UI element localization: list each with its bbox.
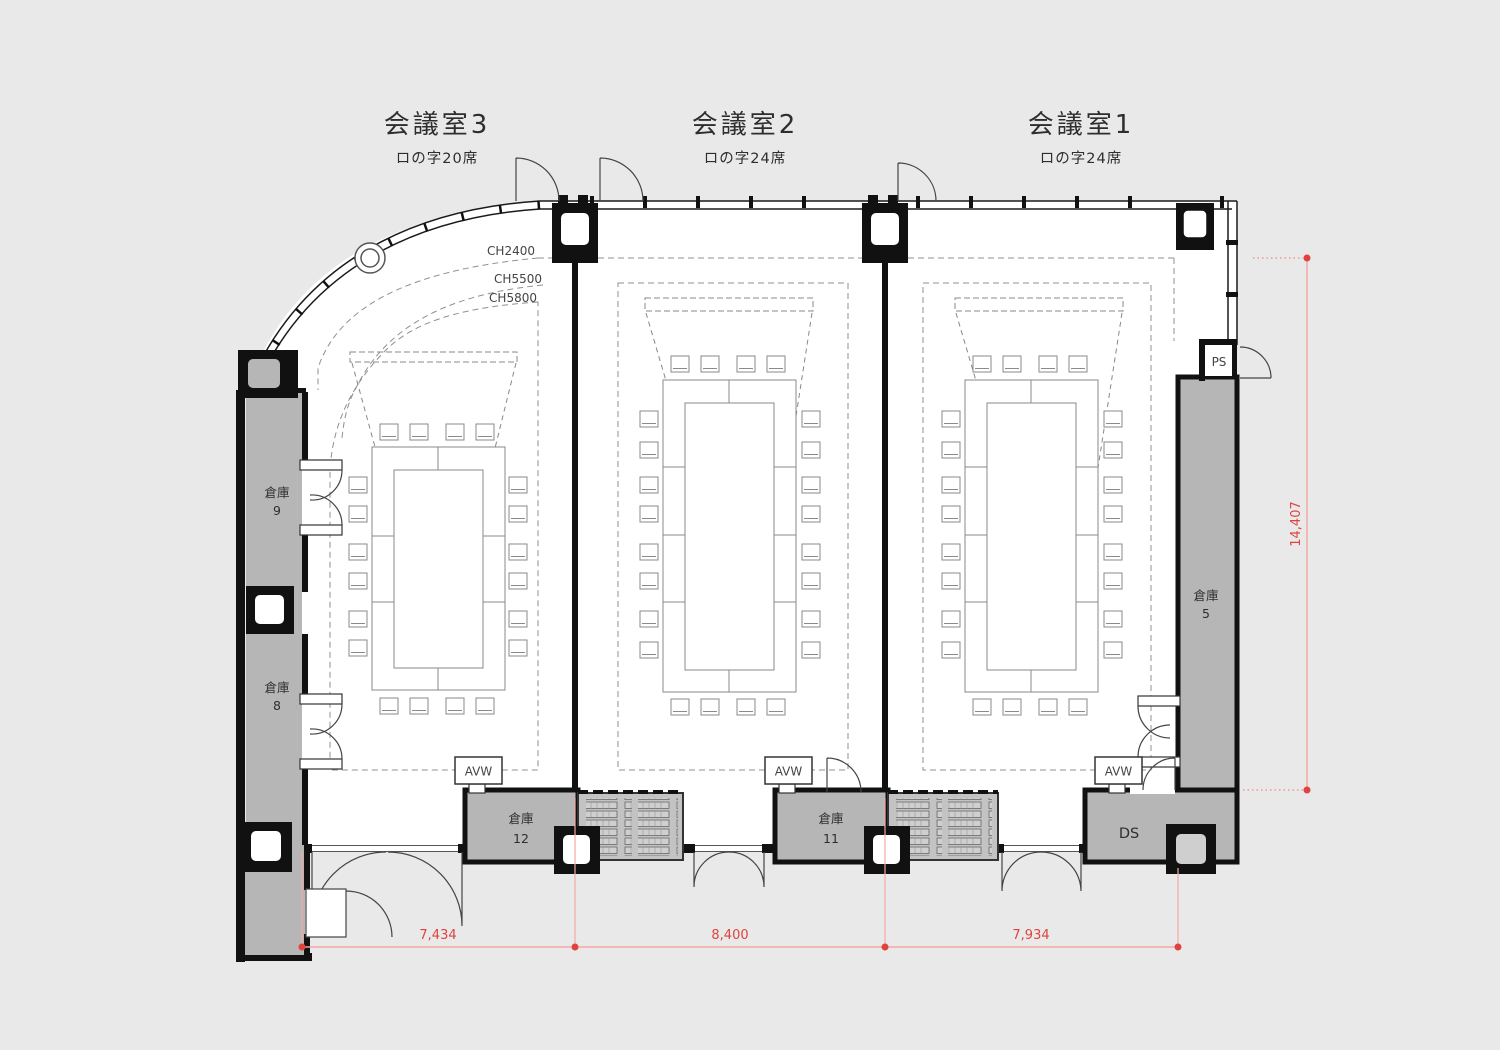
door-corridor-room2	[694, 852, 764, 887]
room-3-subtitle: ロの字20席	[396, 150, 478, 167]
door-top-room3	[516, 158, 559, 201]
column-left-top	[238, 350, 298, 398]
svg-text:倉庫: 倉庫	[1193, 588, 1218, 603]
column-bottom-2	[864, 826, 910, 874]
ps-label: PS	[1212, 355, 1227, 369]
svg-text:11: 11	[823, 831, 839, 846]
meeting-room-1-tables	[965, 380, 1098, 692]
svg-text:倉庫: 倉庫	[508, 811, 533, 826]
door-corridor-room1	[1002, 852, 1081, 891]
dim-bottom-3: 7,934	[1012, 928, 1049, 943]
svg-text:12: 12	[513, 831, 529, 846]
avw-label-room1: AVW	[1105, 765, 1133, 779]
column-round	[355, 243, 385, 273]
column-top-1	[552, 203, 598, 263]
dim-right: 14,407	[1289, 501, 1304, 547]
svg-text:5: 5	[1202, 606, 1210, 621]
column-left-bottom	[242, 822, 292, 872]
meeting-room-2-tables	[663, 380, 796, 692]
avw-label-room2: AVW	[775, 765, 803, 779]
floor-plan-drawing: AVW AVW AVW 7,434 8,400 7,934 14,407 会議室…	[0, 0, 1500, 1050]
svg-text:8: 8	[273, 698, 281, 713]
room-2-subtitle: ロの字24席	[704, 150, 786, 167]
floor-plan-canvas: AVW AVW AVW 7,434 8,400 7,934 14,407 会議室…	[0, 0, 1500, 1050]
svg-text:9: 9	[273, 503, 281, 518]
room-1-title: 会議室1	[1028, 110, 1135, 140]
dim-bottom-2: 8,400	[711, 928, 748, 943]
column-bottom-1	[554, 826, 600, 874]
ch5800-label: CH5800	[489, 291, 537, 305]
ch5500-label: CH5500	[494, 272, 542, 286]
column-top-2	[862, 203, 908, 263]
left-wall	[236, 390, 245, 962]
door-lower-left	[306, 889, 392, 937]
room-1-subtitle: ロの字24席	[1040, 150, 1122, 167]
column-ds	[1166, 824, 1216, 874]
ch2400-label: CH2400	[487, 244, 535, 258]
door-top-room1	[898, 163, 936, 201]
svg-text:倉庫: 倉庫	[264, 485, 289, 500]
room-3-title: 会議室3	[384, 110, 491, 140]
avw-label-room3: AVW	[465, 765, 493, 779]
column-left-mid	[246, 586, 294, 634]
meeting-room-3-tables	[372, 447, 505, 690]
column-top-3	[1176, 203, 1214, 250]
door-top-room2	[600, 158, 643, 201]
svg-text:倉庫: 倉庫	[264, 680, 289, 695]
door-ps	[1240, 347, 1271, 378]
svg-text:倉庫: 倉庫	[818, 811, 843, 826]
room-2-title: 会議室2	[692, 110, 799, 140]
ds-label: DS	[1119, 826, 1139, 842]
storage-5-area	[1178, 377, 1237, 790]
dim-bottom-1: 7,434	[419, 928, 456, 943]
